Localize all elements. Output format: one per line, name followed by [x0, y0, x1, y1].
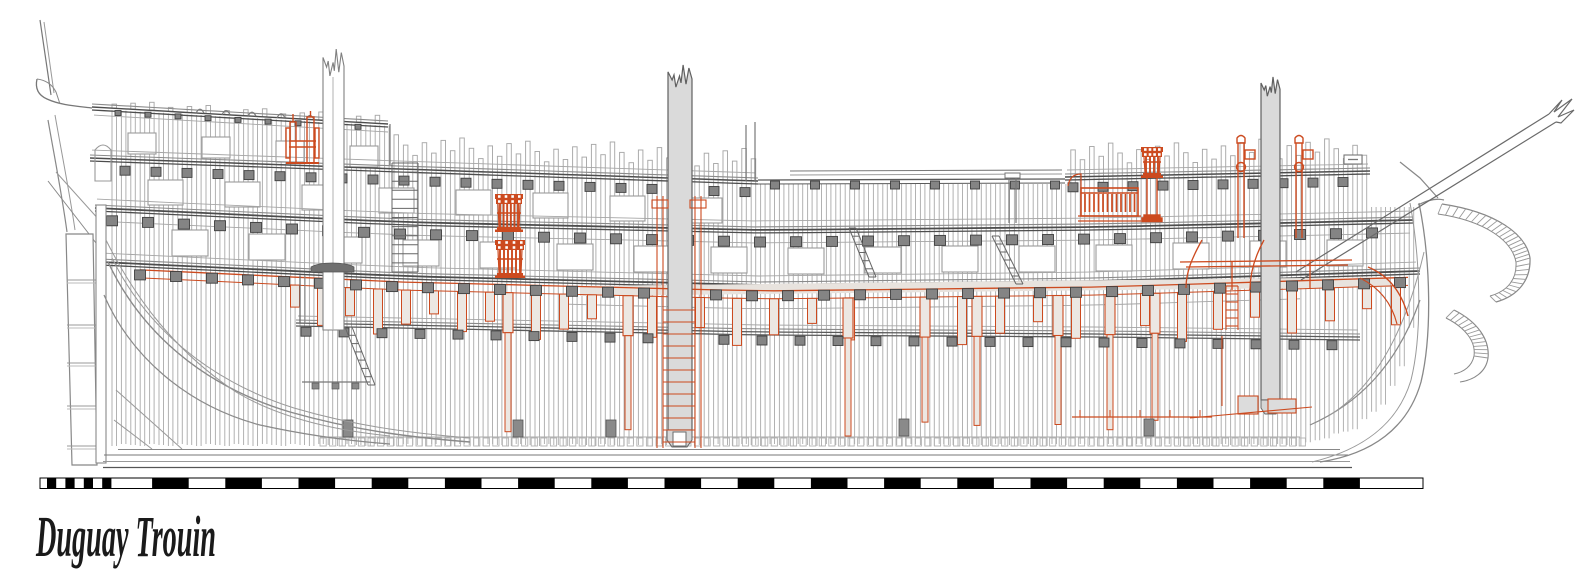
svg-text:Duguay Trouin: Duguay Trouin	[36, 504, 216, 569]
